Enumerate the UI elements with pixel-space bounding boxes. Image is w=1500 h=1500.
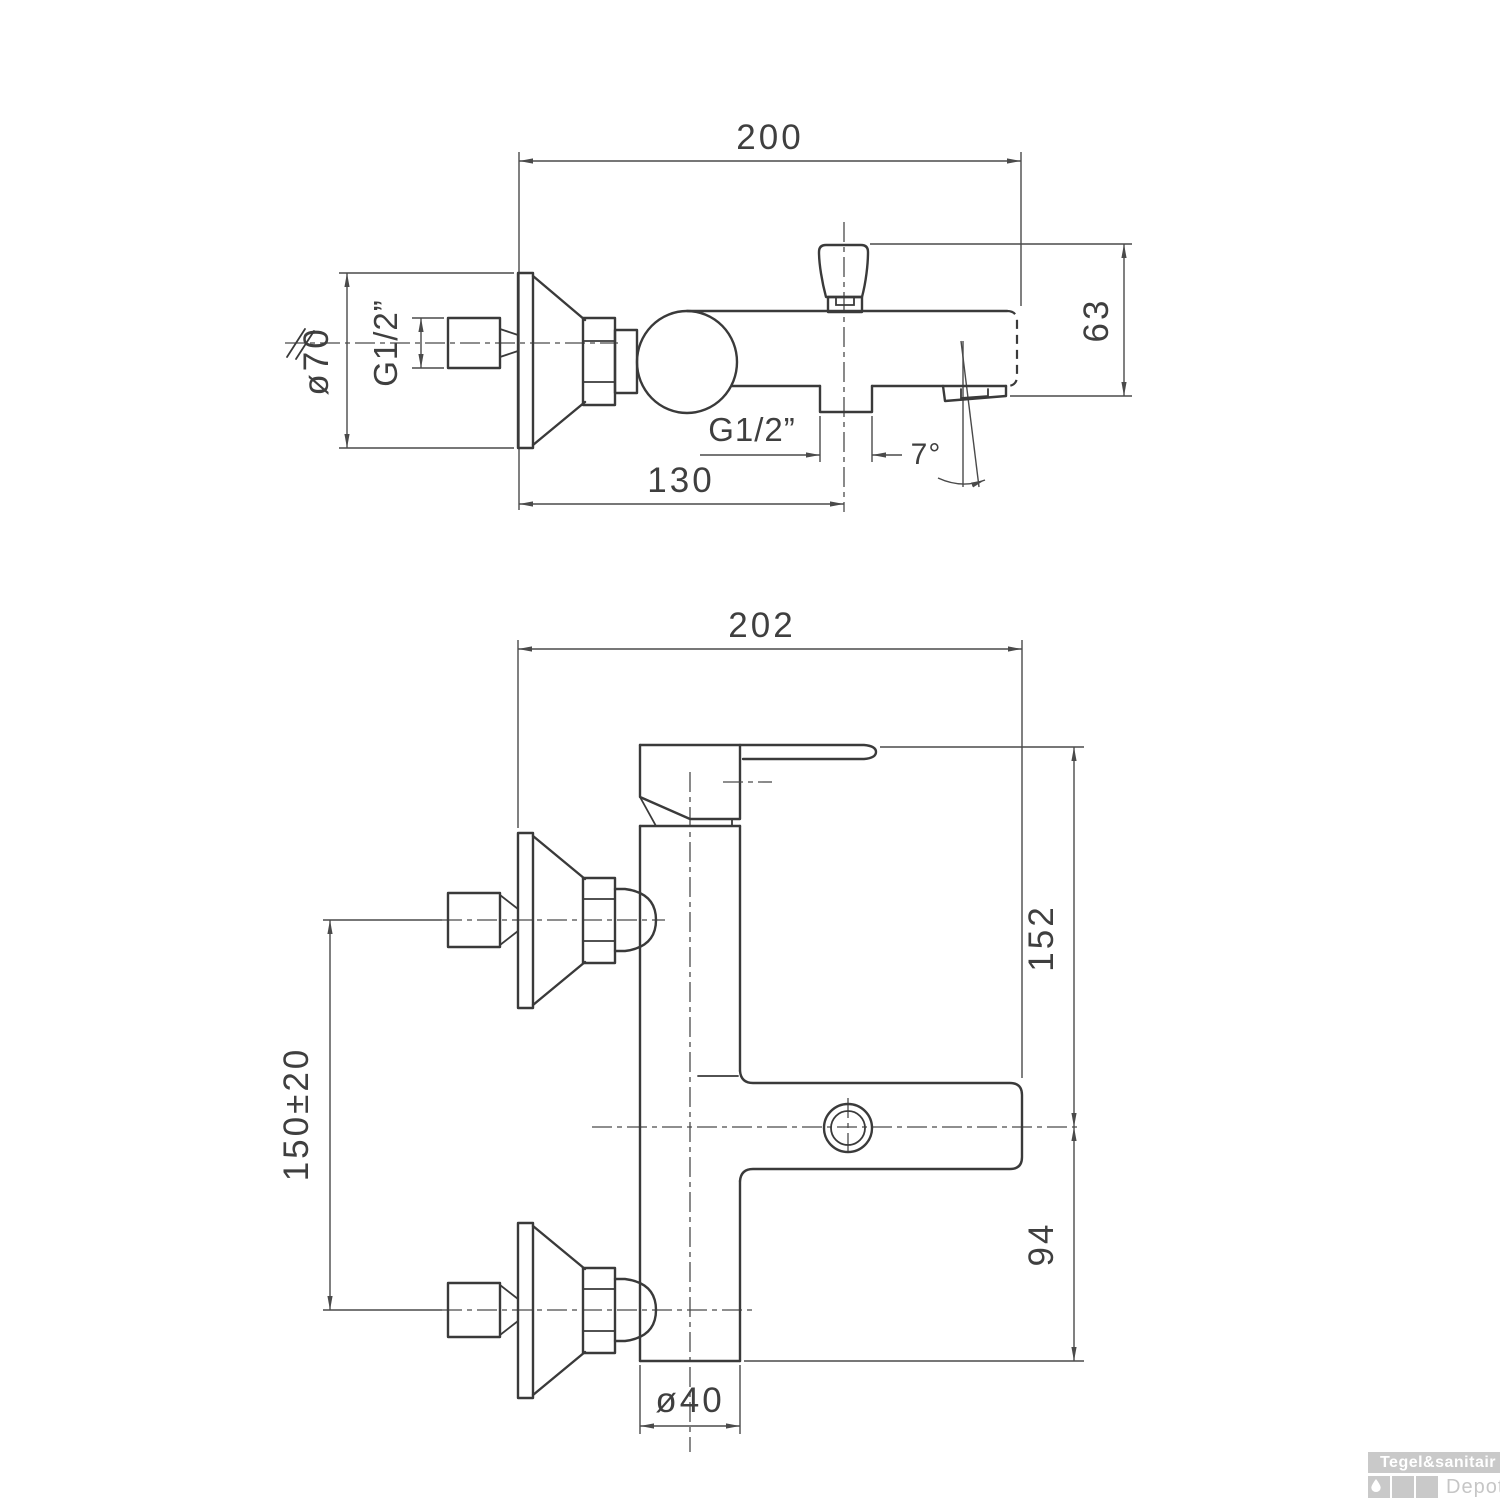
watermark-droplet-square: [1368, 1476, 1390, 1498]
dim-spout-angle-label: 7°: [911, 438, 942, 471]
dim-200: 200: [519, 118, 1021, 510]
dim-150-20-label: 150±20: [277, 1047, 316, 1182]
dim-130: 130: [519, 461, 844, 504]
watermark-square: [1416, 1476, 1438, 1498]
watermark-sub: Depot: [1446, 1476, 1500, 1498]
dim-94-label: 94: [1022, 1222, 1061, 1267]
shower-outlet: [820, 386, 872, 412]
faucet-dimension-drawing: 200 130 63 ø70 G1/2”: [0, 0, 1500, 1500]
dim-202: 202: [518, 606, 1022, 1078]
dim-63-label: 63: [1077, 298, 1116, 343]
flange-cone: [533, 276, 585, 445]
technical-drawing-page: 200 130 63 ø70 G1/2”: [0, 0, 1500, 1500]
dim-wall-thread-label: G1/2”: [367, 299, 404, 387]
dim-130-label: 130: [647, 461, 714, 500]
dim-body-diameter-label: ø40: [655, 1381, 724, 1420]
spout-mouth: [943, 386, 1006, 401]
cartridge-ball: [637, 311, 737, 413]
dim-63: 63: [870, 244, 1132, 396]
body-end-hidden: [1007, 311, 1017, 386]
watermark-squares: [1368, 1476, 1438, 1498]
dim-flange-diameter-label: ø70: [297, 326, 336, 395]
dim-outlet-thread: G1/2”: [700, 411, 902, 462]
watermark-brand: Tegel&sanitair: [1368, 1452, 1500, 1473]
dim-152-label: 152: [1022, 904, 1061, 971]
top-view: 200 130 63 ø70 G1/2”: [285, 118, 1132, 512]
handle-lever: [640, 745, 876, 759]
dim-94: 94: [744, 1127, 1084, 1361]
dim-outlet-thread-label: G1/2”: [708, 411, 796, 448]
collar: [615, 330, 637, 393]
dim-150-20: 150±20: [277, 920, 442, 1310]
dim-202-label: 202: [728, 606, 795, 645]
dim-flange-diameter: ø70: [297, 273, 514, 448]
wall-flange: [518, 273, 533, 448]
front-view: 202 152 94 150±20 ø40: [277, 606, 1084, 1452]
front-view-body: [448, 745, 1022, 1398]
dim-152: 152: [880, 747, 1084, 1127]
dim-200-label: 200: [736, 118, 803, 157]
dim-spout-angle: 7°: [911, 341, 985, 487]
union-nut: [583, 318, 615, 405]
spout-arm: [740, 1071, 1022, 1181]
watermark-square: [1392, 1476, 1414, 1498]
droplet-icon: [1368, 1476, 1384, 1494]
